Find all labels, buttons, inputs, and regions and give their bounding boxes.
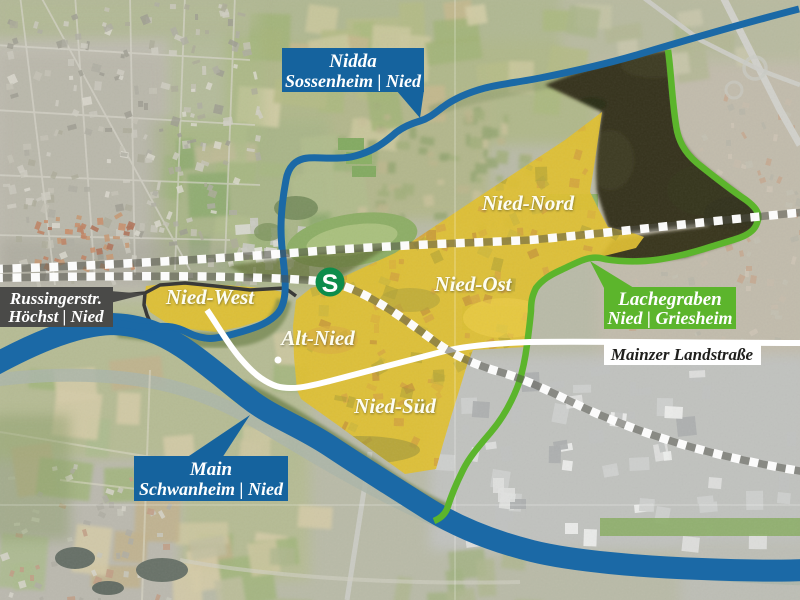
svg-text:Nied-Ost: Nied-Ost: [434, 272, 513, 296]
svg-text:Höchst | Nied: Höchst | Nied: [7, 307, 104, 326]
svg-text:Mainzer Landstraße: Mainzer Landstraße: [610, 345, 754, 364]
svg-text:Russingerstr.: Russingerstr.: [9, 289, 102, 308]
svg-text:Nied | Griesheim: Nied | Griesheim: [607, 308, 733, 328]
svg-text:S: S: [322, 270, 339, 298]
svg-text:Sossenheim | Nied: Sossenheim | Nied: [285, 71, 422, 91]
svg-text:Main: Main: [189, 459, 232, 480]
svg-text:Lachegraben: Lachegraben: [617, 289, 721, 310]
svg-text:Nied-Nord: Nied-Nord: [481, 191, 575, 215]
svg-text:Nied-Süd: Nied-Süd: [353, 394, 436, 418]
svg-text:Alt-Nied: Alt-Nied: [279, 326, 355, 350]
svg-text:Nied-West: Nied-West: [165, 285, 255, 309]
svg-text:Schwanheim | Nied: Schwanheim | Nied: [139, 479, 284, 499]
svg-text:Nidda: Nidda: [328, 51, 377, 72]
